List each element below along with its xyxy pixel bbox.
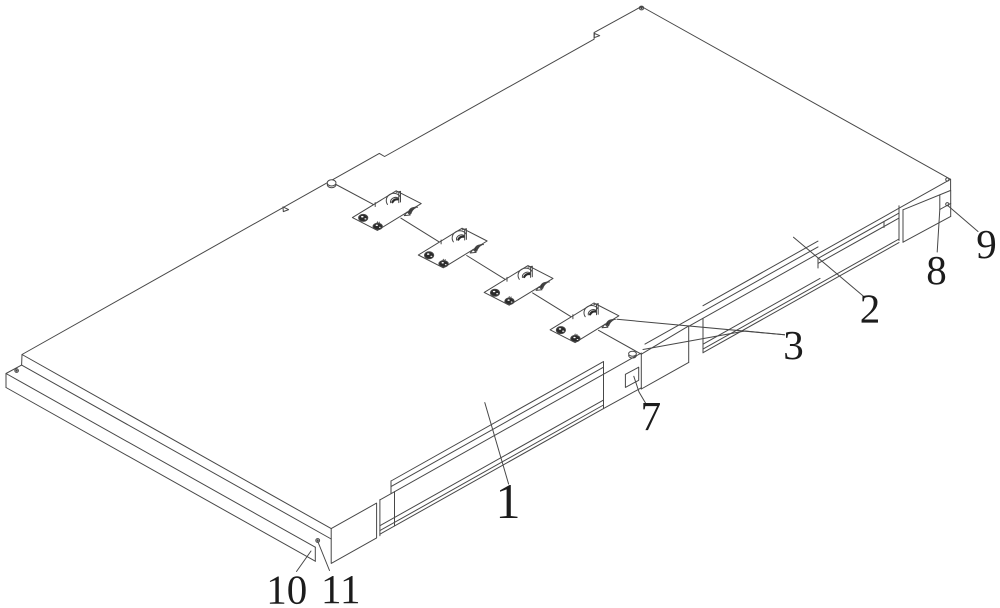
svg-text:2: 2: [860, 285, 881, 331]
svg-text:11: 11: [321, 566, 360, 608]
svg-text:7: 7: [641, 393, 662, 439]
svg-text:8: 8: [926, 247, 947, 293]
svg-text:3: 3: [783, 322, 804, 368]
svg-text:9: 9: [976, 221, 997, 267]
svg-text:1: 1: [496, 473, 521, 529]
svg-text:10: 10: [266, 567, 307, 608]
